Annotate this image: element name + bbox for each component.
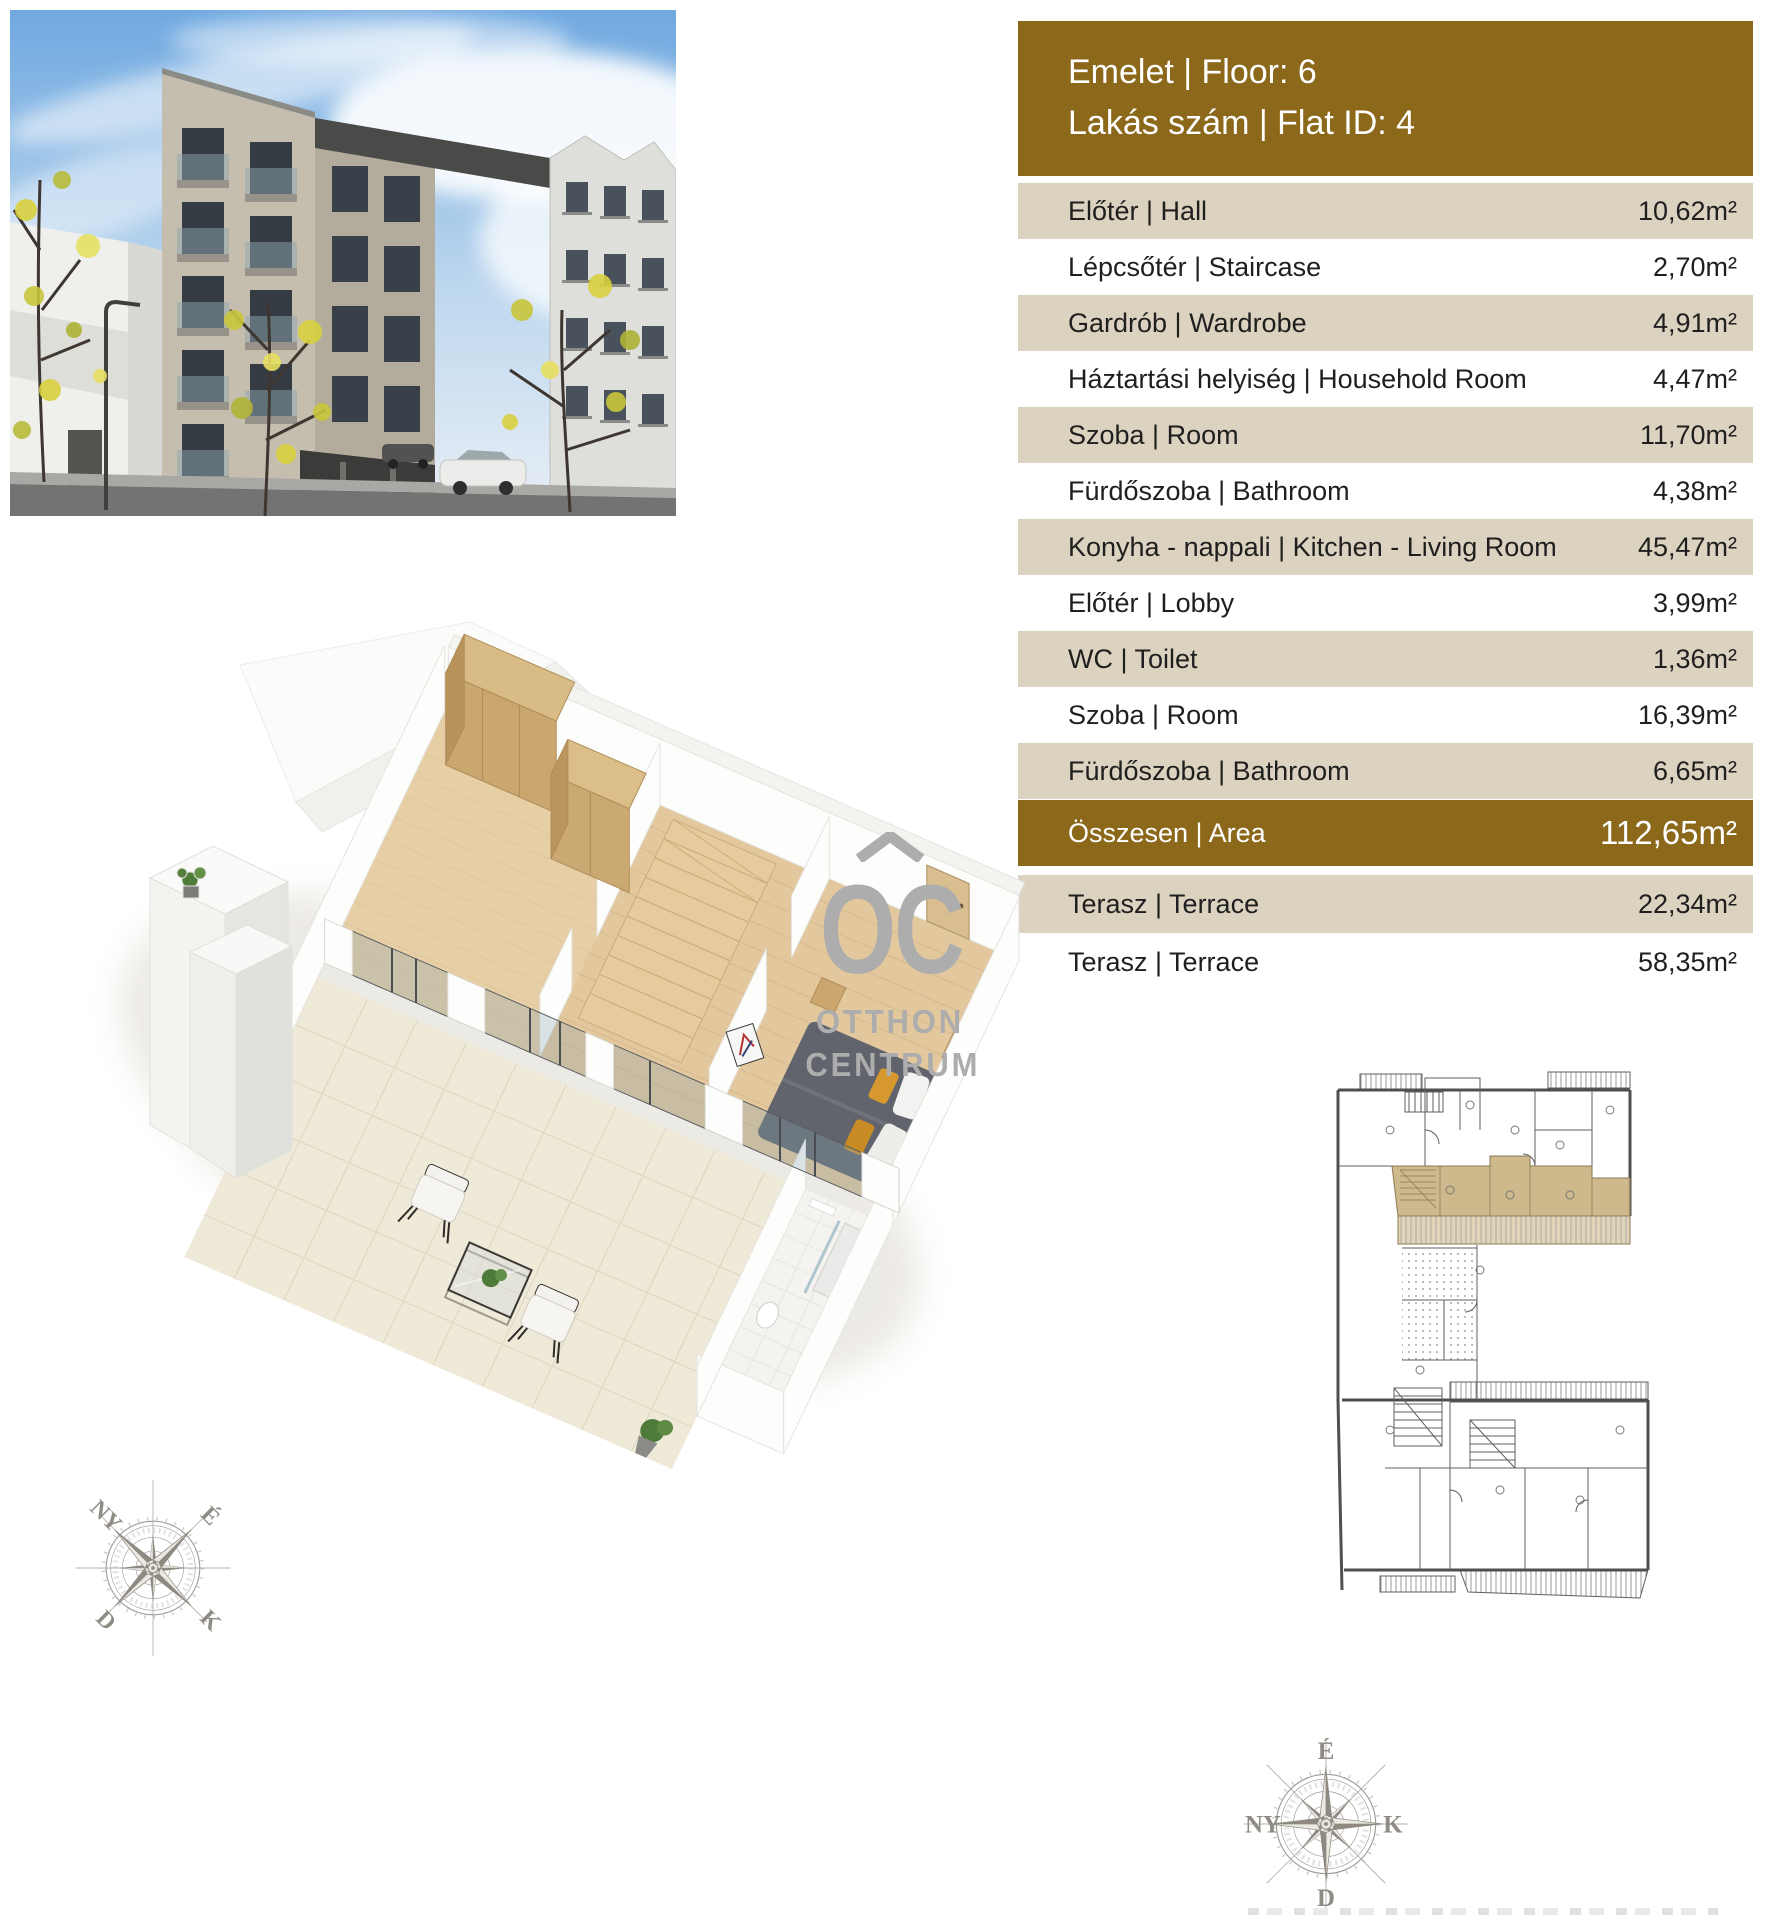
total-label: Összesen | Area <box>1068 818 1266 849</box>
area-row: Szoba | Room16,39m² <box>1018 687 1753 743</box>
roof-chevron-icon <box>853 832 927 862</box>
flat-header: Emelet | Floor: 6 Lakás szám | Flat ID: … <box>1018 21 1753 176</box>
room-area: 1,36m² <box>1653 644 1737 675</box>
room-label: Fürdőszoba | Bathroom <box>1068 756 1350 787</box>
plan-lines <box>1338 1072 1648 1598</box>
flat-line: Lakás szám | Flat ID: 4 <box>1068 98 1753 149</box>
area-row: Gardrób | Wardrobe4,91m² <box>1018 295 1753 351</box>
logo-word-centrum: CENTRUM <box>805 1046 974 1084</box>
logo-monogram: OC <box>820 878 960 981</box>
compass-label-sw: D <box>91 1605 121 1635</box>
compass-label-s: D <box>1317 1885 1335 1910</box>
compass-label-w: NY <box>1245 1812 1281 1839</box>
room-area: 11,70m² <box>1640 420 1737 451</box>
area-row: Háztartási helyiség | Household Room4,47… <box>1018 351 1753 407</box>
room-label: WC | Toilet <box>1068 644 1198 675</box>
total-row: Összesen | Area 112,65m² <box>1018 800 1753 866</box>
area-panel: Emelet | Floor: 6 Lakás szám | Flat ID: … <box>1018 21 1753 991</box>
column-block <box>150 846 292 1178</box>
building-render-photo <box>10 10 676 516</box>
compass-label-nw: NY <box>85 1495 127 1537</box>
room-label: Szoba | Room <box>1068 420 1239 451</box>
room-label: Gardrób | Wardrobe <box>1068 308 1307 339</box>
room-label: Előtér | Lobby <box>1068 588 1234 619</box>
room-area: 4,91m² <box>1653 308 1737 339</box>
room-area: 6,65m² <box>1653 756 1737 787</box>
floor-line: Emelet | Floor: 6 <box>1068 47 1753 98</box>
foreground-building <box>10 222 162 516</box>
room-label: Előtér | Hall <box>1068 196 1207 227</box>
highlighted-flat <box>1392 1156 1630 1244</box>
compass-label-e: K <box>1383 1812 1403 1839</box>
area-row: Konyha - nappali | Kitchen - Living Room… <box>1018 519 1753 575</box>
room-label: Terasz | Terrace <box>1068 889 1259 920</box>
cropped-caption <box>1248 1908 1718 1915</box>
room-label: Terasz | Terrace <box>1068 947 1259 978</box>
room-label: Fürdőszoba | Bathroom <box>1068 476 1350 507</box>
room-label: Háztartási helyiség | Household Room <box>1068 364 1527 395</box>
room-area: 4,47m² <box>1653 364 1737 395</box>
area-row: WC | Toilet1,36m² <box>1018 631 1753 687</box>
compass-rose-left: NY É D K <box>72 1478 234 1658</box>
room-area: 2,70m² <box>1653 252 1737 283</box>
room-area: 45,47m² <box>1638 532 1737 563</box>
room-area: 4,38m² <box>1653 476 1737 507</box>
area-row: Szoba | Room11,70m² <box>1018 407 1753 463</box>
neighbour-building <box>550 136 676 516</box>
room-area: 22,34m² <box>1638 889 1737 920</box>
room-list: Előtér | Hall10,62m²Lépcsőtér | Staircas… <box>1018 183 1753 799</box>
area-row: Lépcsőtér | Staircase2,70m² <box>1018 239 1753 295</box>
terrace-list: Terasz | Terrace22,34m²Terasz | Terrace5… <box>1018 875 1753 991</box>
room-area: 10,62m² <box>1638 196 1737 227</box>
compass-label-ne: É <box>195 1502 224 1531</box>
area-row: Előtér | Lobby3,99m² <box>1018 575 1753 631</box>
room-area: 58,35m² <box>1638 947 1737 978</box>
compass-label-n: É <box>1318 1738 1335 1765</box>
logo-word-otthon: OTTHON <box>805 1003 974 1041</box>
room-label: Konyha - nappali | Kitchen - Living Room <box>1068 532 1557 563</box>
site-floorplan-drawing <box>1330 1070 1655 1615</box>
total-area: 112,65m² <box>1600 814 1737 852</box>
compass-label-se: K <box>195 1605 227 1637</box>
room-area: 3,99m² <box>1653 588 1737 619</box>
area-row: Fürdőszoba | Bathroom6,65m² <box>1018 743 1753 799</box>
area-row: Fürdőszoba | Bathroom4,38m² <box>1018 463 1753 519</box>
room-label: Szoba | Room <box>1068 700 1239 731</box>
compass-rose-right: É K D NY <box>1240 1738 1412 1910</box>
area-row: Terasz | Terrace22,34m² <box>1018 875 1753 933</box>
area-row: Előtér | Hall10,62m² <box>1018 183 1753 239</box>
room-label: Lépcsőtér | Staircase <box>1068 252 1321 283</box>
room-area: 16,39m² <box>1638 700 1737 731</box>
flyer-page: Emelet | Floor: 6 Lakás szám | Flat ID: … <box>0 0 1776 1920</box>
otthon-centrum-watermark: OC OTTHON CENTRUM <box>800 832 980 1084</box>
area-row: Terasz | Terrace58,35m² <box>1018 933 1753 991</box>
